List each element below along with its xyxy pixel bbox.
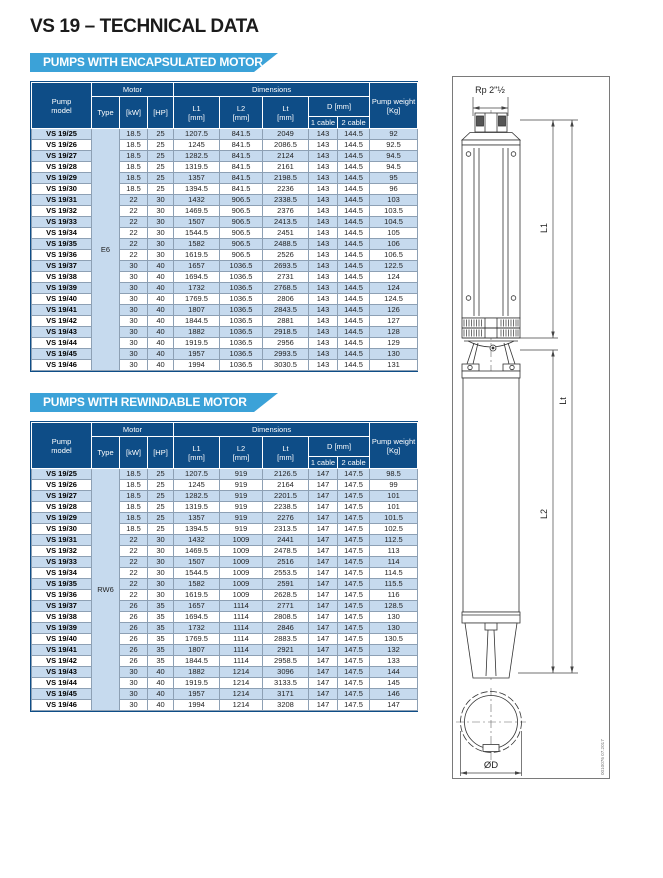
value-cell: 1807	[174, 305, 220, 316]
header-pump-weight: Pump weight [Kg]	[370, 83, 418, 129]
pump-model-cell: VS 19/32	[32, 206, 92, 217]
pump-model-cell: VS 19/29	[32, 173, 92, 184]
value-cell: 143	[309, 217, 338, 228]
value-cell: 143	[309, 162, 338, 173]
value-cell: 144.5	[338, 151, 370, 162]
value-cell: 919	[220, 480, 263, 491]
table-row: VS 19/3422301544.510092553.5147147.5114.…	[32, 568, 418, 579]
value-cell: 105	[370, 228, 418, 239]
table-row: VS 19/3018.5251394.5841.52236143144.596	[32, 184, 418, 195]
value-cell: 147	[309, 656, 338, 667]
value-cell: 147	[309, 590, 338, 601]
value-cell: 145	[370, 678, 418, 689]
value-cell: 40	[148, 261, 174, 272]
value-cell: 113	[370, 546, 418, 557]
value-cell: 40	[148, 283, 174, 294]
value-cell: 25	[148, 151, 174, 162]
value-cell: 30	[120, 305, 148, 316]
value-cell: 30	[120, 272, 148, 283]
value-cell: 147.5	[338, 568, 370, 579]
value-cell: 1207.5	[174, 129, 220, 140]
value-cell: 1114	[220, 645, 263, 656]
value-cell: 2049	[263, 129, 309, 140]
value-cell: 40	[148, 316, 174, 327]
value-cell: 30	[148, 228, 174, 239]
value-cell: 115.5	[370, 579, 418, 590]
value-cell: 143	[309, 228, 338, 239]
header-hp: [HP]	[148, 97, 174, 129]
value-cell: 1732	[174, 283, 220, 294]
value-cell: 2526	[263, 250, 309, 261]
table-row: VS 19/4230401844.51036.52881143144.5127	[32, 316, 418, 327]
value-cell: 1036.5	[220, 272, 263, 283]
value-cell: 18.5	[120, 524, 148, 535]
value-cell: 2164	[263, 480, 309, 491]
value-cell: 22	[120, 568, 148, 579]
value-cell: 18.5	[120, 513, 148, 524]
header-hp: [HP]	[148, 437, 174, 469]
pump-model-cell: VS 19/33	[32, 557, 92, 568]
value-cell: 1036.5	[220, 327, 263, 338]
value-cell: 144.5	[338, 349, 370, 360]
value-cell: 919	[220, 502, 263, 513]
value-cell: 1357	[174, 173, 220, 184]
table-row: VS 19/3018.5251394.59192313.5147147.5102…	[32, 524, 418, 535]
value-cell: 25	[148, 524, 174, 535]
table-row: VS 19/3830401694.51036.52731143144.5124	[32, 272, 418, 283]
value-cell: 143	[309, 140, 338, 151]
table-row: VS 19/2818.5251319.5841.52161143144.594.…	[32, 162, 418, 173]
value-cell: 1114	[220, 634, 263, 645]
value-cell: 1114	[220, 601, 263, 612]
value-cell: 94.5	[370, 151, 418, 162]
value-cell: 1319.5	[174, 162, 220, 173]
pump-model-cell: VS 19/34	[32, 228, 92, 239]
value-cell: 143	[309, 272, 338, 283]
value-cell: 18.5	[120, 151, 148, 162]
value-cell: 106.5	[370, 250, 418, 261]
value-cell: 147	[309, 678, 338, 689]
value-cell: 25	[148, 129, 174, 140]
value-cell: 1769.5	[174, 294, 220, 305]
value-cell: 2201.5	[263, 491, 309, 502]
value-cell: 101.5	[370, 513, 418, 524]
header-1-cable: 1 cable	[309, 457, 338, 469]
header-lt: Lt [mm]	[263, 437, 309, 469]
header-dimensions: Dimensions	[174, 423, 370, 437]
pump-model-cell: VS 19/25	[32, 469, 92, 480]
value-cell: 147	[309, 491, 338, 502]
value-cell: 1432	[174, 195, 220, 206]
value-cell: 1036.5	[220, 283, 263, 294]
value-cell: 40	[148, 678, 174, 689]
table-row: VS 19/412635180711142921147147.5132	[32, 645, 418, 656]
value-cell: 1769.5	[174, 634, 220, 645]
value-cell: 1732	[174, 623, 220, 634]
value-cell: 2883.5	[263, 634, 309, 645]
pump-model-cell: VS 19/34	[32, 568, 92, 579]
value-cell: 147	[309, 502, 338, 513]
value-cell: 143	[309, 338, 338, 349]
value-cell: 144.5	[338, 316, 370, 327]
table-row: VS 19/4026351769.511142883.5147147.5130.…	[32, 634, 418, 645]
value-cell: 127	[370, 316, 418, 327]
value-cell: 147	[309, 623, 338, 634]
banner-encapsulated-motor: PUMPS WITH ENCAPSULATED MOTOR	[30, 53, 278, 72]
value-cell: 2413.5	[263, 217, 309, 228]
pump-model-cell: VS 19/36	[32, 250, 92, 261]
pump-model-cell: VS 19/31	[32, 535, 92, 546]
pump-model-cell: VS 19/44	[32, 338, 92, 349]
value-cell: 906.5	[220, 228, 263, 239]
value-cell: 147.5	[338, 601, 370, 612]
value-cell: 144.5	[338, 250, 370, 261]
value-cell: 906.5	[220, 250, 263, 261]
value-cell: 133	[370, 656, 418, 667]
value-cell: 1214	[220, 678, 263, 689]
value-cell: 124	[370, 272, 418, 283]
value-cell: 1394.5	[174, 524, 220, 535]
value-cell: 144.5	[338, 129, 370, 140]
value-cell: 40	[148, 689, 174, 700]
value-cell: 147.5	[338, 491, 370, 502]
value-cell: 30	[120, 667, 148, 678]
table-row: VS 19/43304018821036.52918.5143144.5128	[32, 327, 418, 338]
value-cell: 1214	[220, 667, 263, 678]
value-cell: 147.5	[338, 634, 370, 645]
value-cell: 147.5	[338, 579, 370, 590]
value-cell: 919	[220, 469, 263, 480]
value-cell: 144.5	[338, 162, 370, 173]
table-row: VS 19/3322301507906.52413.5143144.5104.5	[32, 217, 418, 228]
value-cell: 147	[309, 601, 338, 612]
table-body-rewindable: VS 19/25RW618.5251207.59192126.5147147.5…	[32, 469, 418, 711]
value-cell: 1036.5	[220, 261, 263, 272]
motor-type-cell: E6	[92, 129, 120, 371]
pump-model-cell: VS 19/37	[32, 261, 92, 272]
value-cell: 95	[370, 173, 418, 184]
value-cell: 1619.5	[174, 590, 220, 601]
value-cell: 131	[370, 360, 418, 371]
value-cell: 1009	[220, 568, 263, 579]
value-cell: 25	[148, 140, 174, 151]
value-cell: 2808.5	[263, 612, 309, 623]
header-type: Type	[92, 437, 120, 469]
value-cell: 146	[370, 689, 418, 700]
value-cell: 30	[120, 316, 148, 327]
value-cell: 147.5	[338, 535, 370, 546]
table-row: VS 19/2918.5251357841.52198.5143144.595	[32, 173, 418, 184]
value-cell: 1919.5	[174, 678, 220, 689]
value-cell: 22	[120, 579, 148, 590]
value-cell: 2086.5	[263, 140, 309, 151]
value-cell: 143	[309, 173, 338, 184]
value-cell: 144.5	[338, 294, 370, 305]
table-row: VS 19/3222301469.5906.52376143144.5103.5	[32, 206, 418, 217]
table-row: VS 19/3222301469.510092478.5147147.5113	[32, 546, 418, 557]
value-cell: 2276	[263, 513, 309, 524]
value-cell: 26	[120, 656, 148, 667]
table-row: VS 19/2718.5251282.5841.52124143144.594.…	[32, 151, 418, 162]
pump-model-cell: VS 19/42	[32, 656, 92, 667]
value-cell: 147	[309, 667, 338, 678]
header-kw: [kW]	[120, 97, 148, 129]
value-cell: 112.5	[370, 535, 418, 546]
header-d-mm: D [mm]	[309, 437, 370, 457]
value-cell: 147	[309, 568, 338, 579]
value-cell: 143	[309, 316, 338, 327]
header-type: Type	[92, 97, 120, 129]
value-cell: 144.5	[338, 173, 370, 184]
value-cell: 1214	[220, 689, 263, 700]
pump-model-cell: VS 19/41	[32, 305, 92, 316]
value-cell: 1994	[174, 360, 220, 371]
table-row: VS 19/25RW618.5251207.59192126.5147147.5…	[32, 469, 418, 480]
value-cell: 147.5	[338, 469, 370, 480]
value-cell: 1009	[220, 535, 263, 546]
pump-model-cell: VS 19/41	[32, 645, 92, 656]
header-l2: L2 [mm]	[220, 437, 263, 469]
suction-strainer	[462, 318, 520, 338]
motor-body	[462, 378, 520, 678]
pump-discharge-head	[462, 113, 520, 145]
value-cell: 147.5	[338, 513, 370, 524]
value-cell: 147	[309, 524, 338, 535]
value-cell: 1394.5	[174, 184, 220, 195]
value-cell: 30	[120, 338, 148, 349]
value-cell: 1036.5	[220, 305, 263, 316]
value-cell: 129	[370, 338, 418, 349]
value-cell: 1036.5	[220, 349, 263, 360]
value-cell: 99	[370, 480, 418, 491]
value-cell: 144	[370, 667, 418, 678]
value-cell: 841.5	[220, 129, 263, 140]
table-row: VS 19/453040195712143171147147.5146	[32, 689, 418, 700]
header-pump-weight: Pump weight [Kg]	[370, 423, 418, 469]
cross-section-view	[456, 688, 526, 760]
pump-model-cell: VS 19/33	[32, 217, 92, 228]
value-cell: 22	[120, 590, 148, 601]
value-cell: 3171	[263, 689, 309, 700]
header-l2: L2 [mm]	[220, 97, 263, 129]
value-cell: 144.5	[338, 195, 370, 206]
table-row: VS 19/37304016571036.52693.5143144.5122.…	[32, 261, 418, 272]
value-cell: 841.5	[220, 151, 263, 162]
value-cell: 130	[370, 612, 418, 623]
value-cell: 143	[309, 250, 338, 261]
value-cell: 1207.5	[174, 469, 220, 480]
value-cell: 143	[309, 283, 338, 294]
value-cell: 1009	[220, 557, 263, 568]
table-row: VS 19/41304018071036.52843.5143144.5126	[32, 305, 418, 316]
value-cell: 1507	[174, 217, 220, 228]
value-cell: 2338.5	[263, 195, 309, 206]
value-cell: 132	[370, 645, 418, 656]
value-cell: 143	[309, 305, 338, 316]
header-1-cable: 1 cable	[309, 117, 338, 129]
table-row: VS 19/463040199412143208147147.5147	[32, 700, 418, 711]
value-cell: 147.5	[338, 502, 370, 513]
value-cell: 2198.5	[263, 173, 309, 184]
value-cell: 147	[309, 700, 338, 711]
pump-model-cell: VS 19/28	[32, 162, 92, 173]
value-cell: 147.5	[338, 645, 370, 656]
value-cell: 143	[309, 327, 338, 338]
value-cell: 18.5	[120, 184, 148, 195]
value-cell: 2693.5	[263, 261, 309, 272]
value-cell: 30	[148, 590, 174, 601]
value-cell: 25	[148, 162, 174, 173]
value-cell: 103	[370, 195, 418, 206]
value-cell: 40	[148, 700, 174, 711]
value-cell: 2918.5	[263, 327, 309, 338]
table-row: VS 19/392635173211142846147147.5130	[32, 623, 418, 634]
value-cell: 22	[120, 195, 148, 206]
value-cell: 124.5	[370, 294, 418, 305]
value-cell: 22	[120, 250, 148, 261]
value-cell: 147	[309, 480, 338, 491]
value-cell: 1694.5	[174, 272, 220, 283]
value-cell: 40	[148, 338, 174, 349]
value-cell: 126	[370, 305, 418, 316]
value-cell: 841.5	[220, 173, 263, 184]
value-cell: 101	[370, 491, 418, 502]
pump-model-cell: VS 19/39	[32, 623, 92, 634]
value-cell: 22	[120, 217, 148, 228]
value-cell: 1469.5	[174, 546, 220, 557]
pump-model-cell: VS 19/36	[32, 590, 92, 601]
table-row: VS 19/2618.52512459192164147147.599	[32, 480, 418, 491]
value-cell: 30	[148, 250, 174, 261]
pump-model-cell: VS 19/27	[32, 491, 92, 502]
document-code: 0010076 07.2017	[600, 739, 605, 775]
value-cell: 3030.5	[263, 360, 309, 371]
value-cell: 841.5	[220, 162, 263, 173]
value-cell: 841.5	[220, 184, 263, 195]
value-cell: 18.5	[120, 162, 148, 173]
diameter-dimension-label: ØD	[484, 760, 498, 771]
value-cell: 906.5	[220, 195, 263, 206]
pump-model-cell: VS 19/39	[32, 283, 92, 294]
value-cell: 30	[148, 217, 174, 228]
table-row: VS 19/2718.5251282.59192201.5147147.5101	[32, 491, 418, 502]
value-cell: 40	[148, 349, 174, 360]
value-cell: 18.5	[120, 469, 148, 480]
value-cell: 114.5	[370, 568, 418, 579]
value-cell: 122.5	[370, 261, 418, 272]
pump-model-cell: VS 19/31	[32, 195, 92, 206]
value-cell: 18.5	[120, 140, 148, 151]
value-cell: 144.5	[338, 184, 370, 195]
l2-dimension-label: L2	[539, 509, 549, 519]
value-cell: 144.5	[338, 206, 370, 217]
value-cell: 906.5	[220, 239, 263, 250]
value-cell: 919	[220, 513, 263, 524]
pump-model-cell: VS 19/40	[32, 294, 92, 305]
value-cell: 35	[148, 601, 174, 612]
table-row: VS 19/4030401769.51036.52806143144.5124.…	[32, 294, 418, 305]
value-cell: 147.5	[338, 557, 370, 568]
value-cell: 2441	[263, 535, 309, 546]
value-cell: 147.5	[338, 612, 370, 623]
value-cell: 147	[309, 645, 338, 656]
value-cell: 147.5	[338, 546, 370, 557]
value-cell: 1114	[220, 612, 263, 623]
value-cell: 147	[309, 535, 338, 546]
value-cell: 104.5	[370, 217, 418, 228]
value-cell: 40	[148, 305, 174, 316]
value-cell: 906.5	[220, 217, 263, 228]
value-cell: 1357	[174, 513, 220, 524]
pump-model-cell: VS 19/35	[32, 579, 92, 590]
value-cell: 40	[148, 327, 174, 338]
value-cell: 1469.5	[174, 206, 220, 217]
header-motor: Motor	[92, 423, 174, 437]
value-cell: 1957	[174, 689, 220, 700]
value-cell: 2771	[263, 601, 309, 612]
value-cell: 2488.5	[263, 239, 309, 250]
value-cell: 22	[120, 557, 148, 568]
value-cell: 1432	[174, 535, 220, 546]
value-cell: 1036.5	[220, 338, 263, 349]
value-cell: 18.5	[120, 480, 148, 491]
pump-model-cell: VS 19/26	[32, 480, 92, 491]
banner-rewindable-motor: PUMPS WITH REWINDABLE MOTOR	[30, 393, 278, 412]
pump-model-cell: VS 19/46	[32, 360, 92, 371]
value-cell: 1844.5	[174, 316, 220, 327]
pump-model-cell: VS 19/45	[32, 689, 92, 700]
pump-model-cell: VS 19/45	[32, 349, 92, 360]
value-cell: 2478.5	[263, 546, 309, 557]
motor-type-cell: RW6	[92, 469, 120, 711]
value-cell: 144.5	[338, 360, 370, 371]
value-cell: 26	[120, 634, 148, 645]
value-cell: 114	[370, 557, 418, 568]
value-cell: 2628.5	[263, 590, 309, 601]
value-cell: 1657	[174, 261, 220, 272]
value-cell: 92	[370, 129, 418, 140]
value-cell: 143	[309, 184, 338, 195]
value-cell: 2126.5	[263, 469, 309, 480]
value-cell: 1282.5	[174, 151, 220, 162]
value-cell: 2238.5	[263, 502, 309, 513]
value-cell: 25	[148, 513, 174, 524]
table-row: VS 19/3622301619.5906.52526143144.5106.5	[32, 250, 418, 261]
value-cell: 94.5	[370, 162, 418, 173]
value-cell: 35	[148, 634, 174, 645]
header-l1: L1 [mm]	[174, 97, 220, 129]
value-cell: 101	[370, 502, 418, 513]
value-cell: 1994	[174, 700, 220, 711]
value-cell: 3208	[263, 700, 309, 711]
value-cell: 35	[148, 645, 174, 656]
value-cell: 30	[120, 327, 148, 338]
value-cell: 143	[309, 195, 338, 206]
header-2-cable: 2 cable	[338, 117, 370, 129]
value-cell: 1009	[220, 590, 263, 601]
value-cell: 116	[370, 590, 418, 601]
value-cell: 30	[120, 700, 148, 711]
table-row: VS 19/3622301619.510092628.5147147.5116	[32, 590, 418, 601]
value-cell: 26	[120, 623, 148, 634]
table-row: VS 19/2818.5251319.59192238.5147147.5101	[32, 502, 418, 513]
value-cell: 1245	[174, 140, 220, 151]
table-row: VS 19/3122301432906.52338.5143144.5103	[32, 195, 418, 206]
value-cell: 25	[148, 469, 174, 480]
value-cell: 30	[148, 195, 174, 206]
value-cell: 22	[120, 546, 148, 557]
value-cell: 40	[148, 360, 174, 371]
